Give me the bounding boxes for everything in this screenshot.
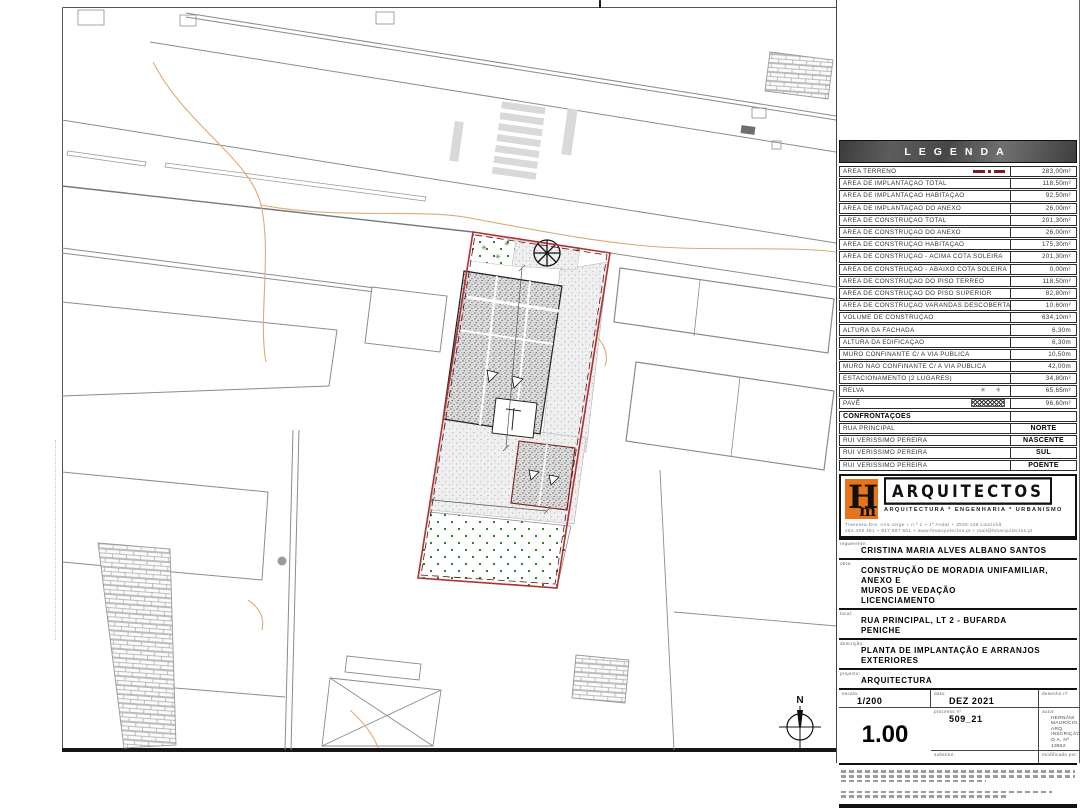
- obra-section: obra: CONSTRUÇÃO DE MORADIA UNIFAMILIAR,…: [839, 558, 1077, 608]
- legend-row-value: 201,30m²: [1010, 252, 1076, 261]
- legend-row-label: PAVÊ: [840, 399, 1010, 407]
- fine-print-line: [841, 775, 1075, 778]
- confrontacoes-row-label: RUI VERISSIMO PEREIRA: [840, 449, 1010, 456]
- firm-name: ARQUITECTOS: [884, 477, 1052, 505]
- legend-row-value: 92,50m²: [1010, 191, 1076, 200]
- sprout-icon: ✳: [481, 244, 487, 252]
- title-block-grid: escala: 1/200 data: DEZ 2021 desenho nº …: [839, 688, 1077, 764]
- legend-row: ÁREA DE CONSTRUÇÃO - ABAIXO COTA SOLEIRA…: [839, 264, 1077, 275]
- anexo-footprint: [511, 441, 575, 510]
- escala-cell: escala: 1/200: [839, 690, 931, 707]
- legend-row-label: ÁREA DE CONSTRUÇÃO TOTAL: [840, 217, 1010, 224]
- legend-row-label: ÁREA DE CONSTRUÇÃO - ABAIXO COTA SOLEIRA: [840, 266, 1010, 273]
- legend-row-value: 118,50m²: [1010, 179, 1076, 188]
- roads: [62, 13, 836, 287]
- requerente-section: requerente: CRISTINA MARIA ALVES ALBANO …: [839, 538, 1077, 558]
- legend-row: PAVÊ96,60m²: [839, 398, 1077, 409]
- plot: ✳ ✳ ✳ ✳: [418, 232, 610, 588]
- legend-row-label: ÁREA DE CONSTRUÇÃO VARANDAS DESCOBERTAS: [840, 302, 1010, 309]
- legend-row-label: MURO CONFINANTE C/ A VIA PÚBLICA: [840, 351, 1010, 358]
- descricao-section: descrição: PLANTA DE IMPLANTAÇÃO E ARRAN…: [839, 638, 1077, 668]
- legend-row: VOLUME DE CONSTRUÇÃO634,10m³: [839, 312, 1077, 323]
- autor-line: HERNÂNI MAURÍCIO, ARQ.: [1051, 716, 1080, 733]
- legend-row: RELVA65,65m²: [839, 385, 1077, 396]
- legend-row-value: 42,00m: [1010, 362, 1076, 371]
- legend-row: ÁREA DE IMPLANTAÇÃO TOTAL118,50m²: [839, 178, 1077, 189]
- legend-row-value: 26,00m²: [1010, 204, 1076, 213]
- legend-row-value: 26,00m²: [1010, 228, 1076, 237]
- site-plan-drawing: ✳ ✳ ✳ ✳: [0, 0, 836, 763]
- legend-row-label: ALTURA DA FACHADA: [840, 327, 1010, 334]
- processo-cell: processo nº 509_21: [931, 707, 1039, 751]
- processo-value: 509_21: [949, 714, 1036, 724]
- fine-print: [839, 763, 1077, 802]
- confrontacoes-title: CONFRONTAÇÕES: [840, 413, 1010, 420]
- legend-row-label: ESTACIONAMENTO (2 LUGARES): [840, 375, 1010, 382]
- margin-stamp: [55, 440, 58, 640]
- projecto-value: ARQUITECTURA: [861, 676, 1077, 686]
- legend-row: ÁREA DE IMPLANTAÇÃO HABITAÇÃO92,50m²: [839, 190, 1077, 201]
- legend-row-label: ÁREA DE CONSTRUÇÃO - ACIMA COTA SOLEIRA: [840, 253, 1010, 260]
- legend-row-value: 65,65m²: [1010, 386, 1076, 395]
- legend-row: ÁREA DE CONSTRUÇÃO DO PISO SUPERIOR82,80…: [839, 288, 1077, 299]
- confrontacoes-row-value: NASCENTE: [1010, 436, 1076, 445]
- confrontacoes-header-row: CONFRONTAÇÕES: [839, 411, 1077, 422]
- legend-row-value: 10,60m²: [1010, 301, 1076, 310]
- legend-row-label: MURO NÃO CONFINANTE C/ A VIA PÚBLICA: [840, 363, 1010, 370]
- legend-row-value: 634,10m³: [1010, 313, 1076, 322]
- legend-row: ÁREA DE CONSTRUÇÃO HABITAÇÃO175,30m²: [839, 239, 1077, 250]
- confrontacoes-row-label: RUA PRINCIPAL: [840, 425, 1010, 432]
- descricao-value: PLANTA DE IMPLANTAÇÃO E ARRANJOS EXTERIO…: [861, 646, 1077, 666]
- sprout-icon: ✳: [504, 240, 510, 248]
- legend-row: ÁREA DE IMPLANTAÇÃO DO ANEXO26,00m²: [839, 203, 1077, 214]
- legend-row-value: 201,30m²: [1010, 216, 1076, 225]
- legend-row-label: ALTURA DA EDIFICAÇÃO: [840, 339, 1010, 346]
- escala-value: 1/200: [857, 696, 928, 706]
- legend-row: ÁREA TERRENO283,00m²: [839, 166, 1077, 177]
- neighbour-buildings-east: [614, 268, 834, 470]
- obra-line: MUROS DE VEDAÇÃO: [861, 586, 1077, 596]
- obra-value: CONSTRUÇÃO DE MORADIA UNIFAMILIAR, ANEXO…: [861, 566, 1077, 606]
- legend-row: ESTACIONAMENTO (2 LUGARES)34,80m²: [839, 373, 1077, 384]
- legend-row-label: ÁREA TERRENO: [840, 168, 1010, 175]
- legend-row: ÁREA DE CONSTRUÇÃO - ACIMA COTA SOLEIRA2…: [839, 251, 1077, 262]
- legend-row-value: 6,30m: [1010, 325, 1076, 334]
- confrontacoes-row-label: RUI VERISSIMO PEREIRA: [840, 462, 1010, 469]
- confrontacoes-row-label: RUI VERISSIMO PEREIRA: [840, 437, 1010, 444]
- north-arrow: N: [779, 695, 821, 748]
- legend-row: ÁREA DE CONSTRUÇÃO DO ANEXO26,00m²: [839, 227, 1077, 238]
- confrontacoes-row-value: POENTE: [1010, 461, 1076, 470]
- pave-symbol-icon: [971, 399, 1005, 407]
- fine-print-line: [841, 795, 1009, 798]
- fine-print-line: [841, 770, 1075, 773]
- substitui-cell: substitui:: [931, 750, 1039, 763]
- data-value: DEZ 2021: [949, 696, 1036, 706]
- north-label: N: [796, 695, 803, 706]
- crosswalk: [448, 93, 577, 184]
- legend-title: LEGENDA: [904, 146, 1011, 158]
- confrontacoes-row: RUA PRINCIPALNORTE: [839, 423, 1077, 434]
- firm-tagline: ARQUITECTURA * ENGENHARIA * URBANISMO: [884, 507, 1071, 513]
- local-value: RUA PRINCIPAL, LT 2 - BUFARDAPENICHE: [861, 616, 1077, 636]
- legend-table: ÁREA TERRENO283,00m²ÁREA DE IMPLANTAÇÃO …: [839, 166, 1077, 409]
- legend-row-value: 283,00m²: [1010, 167, 1076, 176]
- autor-value: HERNÂNI MAURÍCIO, ARQ.INSCRIÇÃO O.A. Nº …: [1051, 716, 1080, 750]
- legend-row-value: 34,80m²: [1010, 374, 1076, 383]
- legend-row-value: 10,50m: [1010, 350, 1076, 359]
- sprout-icon: ✳: [495, 253, 501, 261]
- legend-row-label: ÁREA DE CONSTRUÇÃO DO ANEXO: [840, 229, 1010, 236]
- legend-row-label: ÁREA DE CONSTRUÇÃO DO PISO SUPERIOR: [840, 290, 1010, 297]
- obra-line: LICENCIAMENTO: [861, 596, 1077, 606]
- firm-logo-icon: H m: [845, 479, 878, 519]
- legend-row: ÁREA DE CONSTRUÇÃO DO PISO TÉRREO118,50m…: [839, 276, 1077, 287]
- requerente-value: CRISTINA MARIA ALVES ALBANO SANTOS: [861, 546, 1077, 556]
- confrontacoes-row: RUI VERISSIMO PEREIRAPOENTE: [839, 460, 1077, 471]
- autor-line: INSCRIÇÃO O.A. Nº 13862: [1051, 732, 1080, 749]
- logo-letter-m: m: [859, 501, 876, 520]
- firm-address-line: 261 459 481 + 917 967 661 + www.hmarquit…: [845, 528, 1071, 534]
- legend-row-label: ÁREA DE IMPLANTAÇÃO HABITAÇÃO: [840, 192, 1010, 199]
- local-section: local: RUA PRINCIPAL, LT 2 - BUFARDAPENI…: [839, 608, 1077, 638]
- terreno-symbol-icon: [973, 170, 1005, 173]
- legend-row-value: 96,60m²: [1010, 399, 1076, 408]
- autor-cell: autor: HERNÂNI MAURÍCIO, ARQ.INSCRIÇÃO O…: [1039, 707, 1080, 751]
- data-cell: data: DEZ 2021: [931, 690, 1039, 707]
- legend-row-label: VOLUME DE CONSTRUÇÃO: [840, 314, 1010, 321]
- title-block-column: LEGENDA ÁREA TERRENO283,00m²ÁREA DE IMPL…: [836, 0, 1080, 763]
- legend-row: ALTURA DA EDIFICAÇÃO6,30m: [839, 337, 1077, 348]
- legend-row: ALTURA DA FACHADA6,30m: [839, 324, 1077, 335]
- projecto-section: projecto: ARQUITECTURA: [839, 668, 1077, 688]
- legend-row: MURO NÃO CONFINANTE C/ A VIA PÚBLICA42,0…: [839, 361, 1077, 372]
- legend-row-value: 6,30m: [1010, 338, 1076, 347]
- legend-row-value: 0,00m²: [1010, 265, 1076, 274]
- legend-row-label: RELVA: [840, 387, 1010, 394]
- local-line: PENICHE: [861, 626, 1077, 636]
- confrontacoes-row: RUI VERISSIMO PEREIRASUL: [839, 447, 1077, 458]
- confrontacoes-table: CONFRONTAÇÕES RUA PRINCIPALNORTERUI VERI…: [839, 411, 1077, 471]
- legend-header: LEGENDA: [839, 140, 1077, 163]
- legend-row-value: 82,80m²: [1010, 289, 1076, 298]
- road-marking: [741, 125, 756, 135]
- legend-row-value: 175,30m²: [1010, 240, 1076, 249]
- patio-cutout: [492, 398, 537, 438]
- modificado-cell: modificado por:: [1039, 750, 1080, 763]
- legend-row-label: ÁREA DE IMPLANTAÇÃO TOTAL: [840, 180, 1010, 187]
- legend-row: ÁREA DE CONSTRUÇÃO VARANDAS DESCOBERTAS1…: [839, 300, 1077, 311]
- obra-line: CONSTRUÇÃO DE MORADIA UNIFAMILIAR, ANEXO…: [861, 566, 1077, 586]
- desenho-label-cell: desenho nº: [1039, 690, 1080, 707]
- legend-row-label: ÁREA DE CONSTRUÇÃO DO PISO TÉRREO: [840, 278, 1010, 285]
- legend-row: MURO CONFINANTE C/ A VIA PÚBLICA10,50m: [839, 349, 1077, 360]
- fine-print-line: [841, 791, 1052, 794]
- firm-block: H m ARQUITECTOS ARQUITECTURA * ENGENHARI…: [839, 474, 1077, 538]
- title-block-bottom-rule: [839, 804, 1077, 808]
- legend-row: ÁREA DE CONSTRUÇÃO TOTAL201,30m²: [839, 215, 1077, 226]
- legend-row-label: ÁREA DE IMPLANTAÇÃO DO ANEXO: [840, 205, 1010, 212]
- confrontacoes-row-value: SUL: [1010, 448, 1076, 457]
- local-line: RUA PRINCIPAL, LT 2 - BUFARDA: [861, 616, 1077, 626]
- legend-row-label: ÁREA DE CONSTRUÇÃO HABITAÇÃO: [840, 241, 1010, 248]
- fine-print-line: [841, 780, 986, 783]
- confrontacoes-row-value: NORTE: [1010, 424, 1076, 433]
- legend-row-value: 118,50m²: [1010, 277, 1076, 286]
- firm-address: Travessa Dra. Ana Jorge + n.º 1 + 1º And…: [845, 522, 1071, 534]
- relva-symbol-icon: [980, 388, 1005, 394]
- confrontacoes-row: RUI VERISSIMO PEREIRANASCENTE: [839, 435, 1077, 446]
- lawn-area: [418, 512, 571, 588]
- drawing-number: 1.00: [839, 707, 931, 764]
